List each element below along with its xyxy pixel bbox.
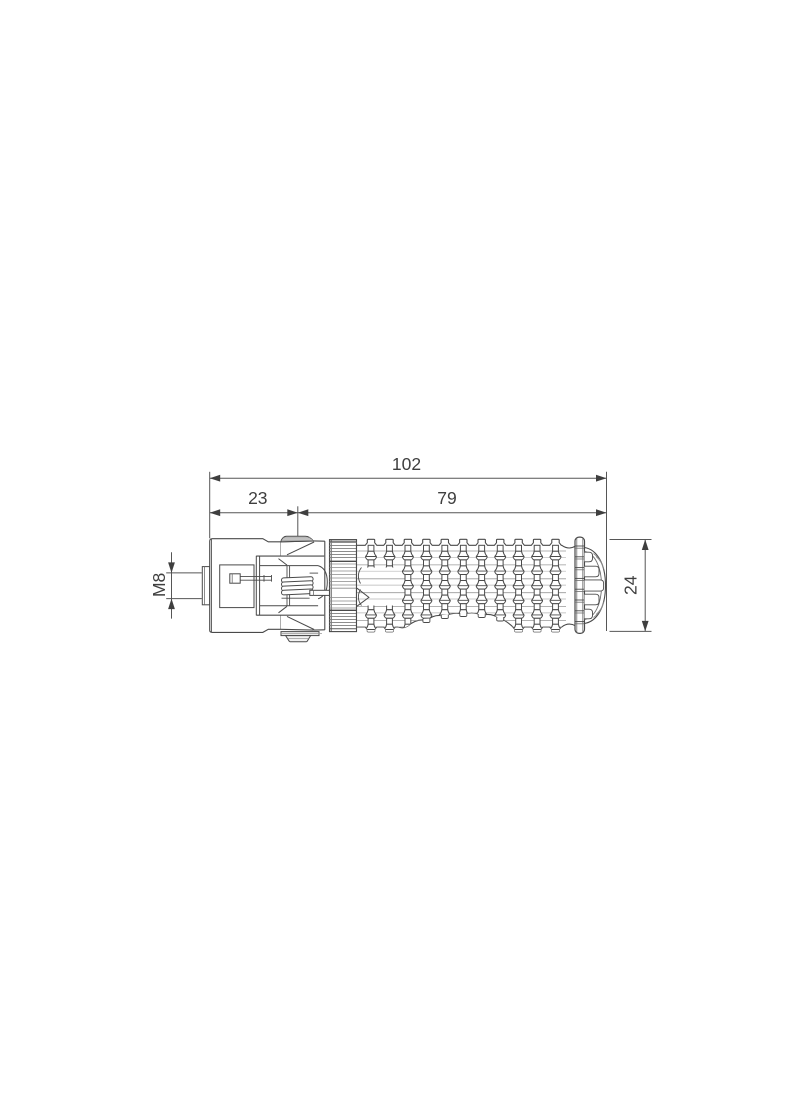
svg-text:24: 24	[621, 575, 641, 595]
svg-text:M8: M8	[149, 573, 169, 597]
svg-text:102: 102	[392, 454, 421, 474]
svg-text:23: 23	[248, 488, 267, 508]
svg-text:79: 79	[437, 488, 456, 508]
